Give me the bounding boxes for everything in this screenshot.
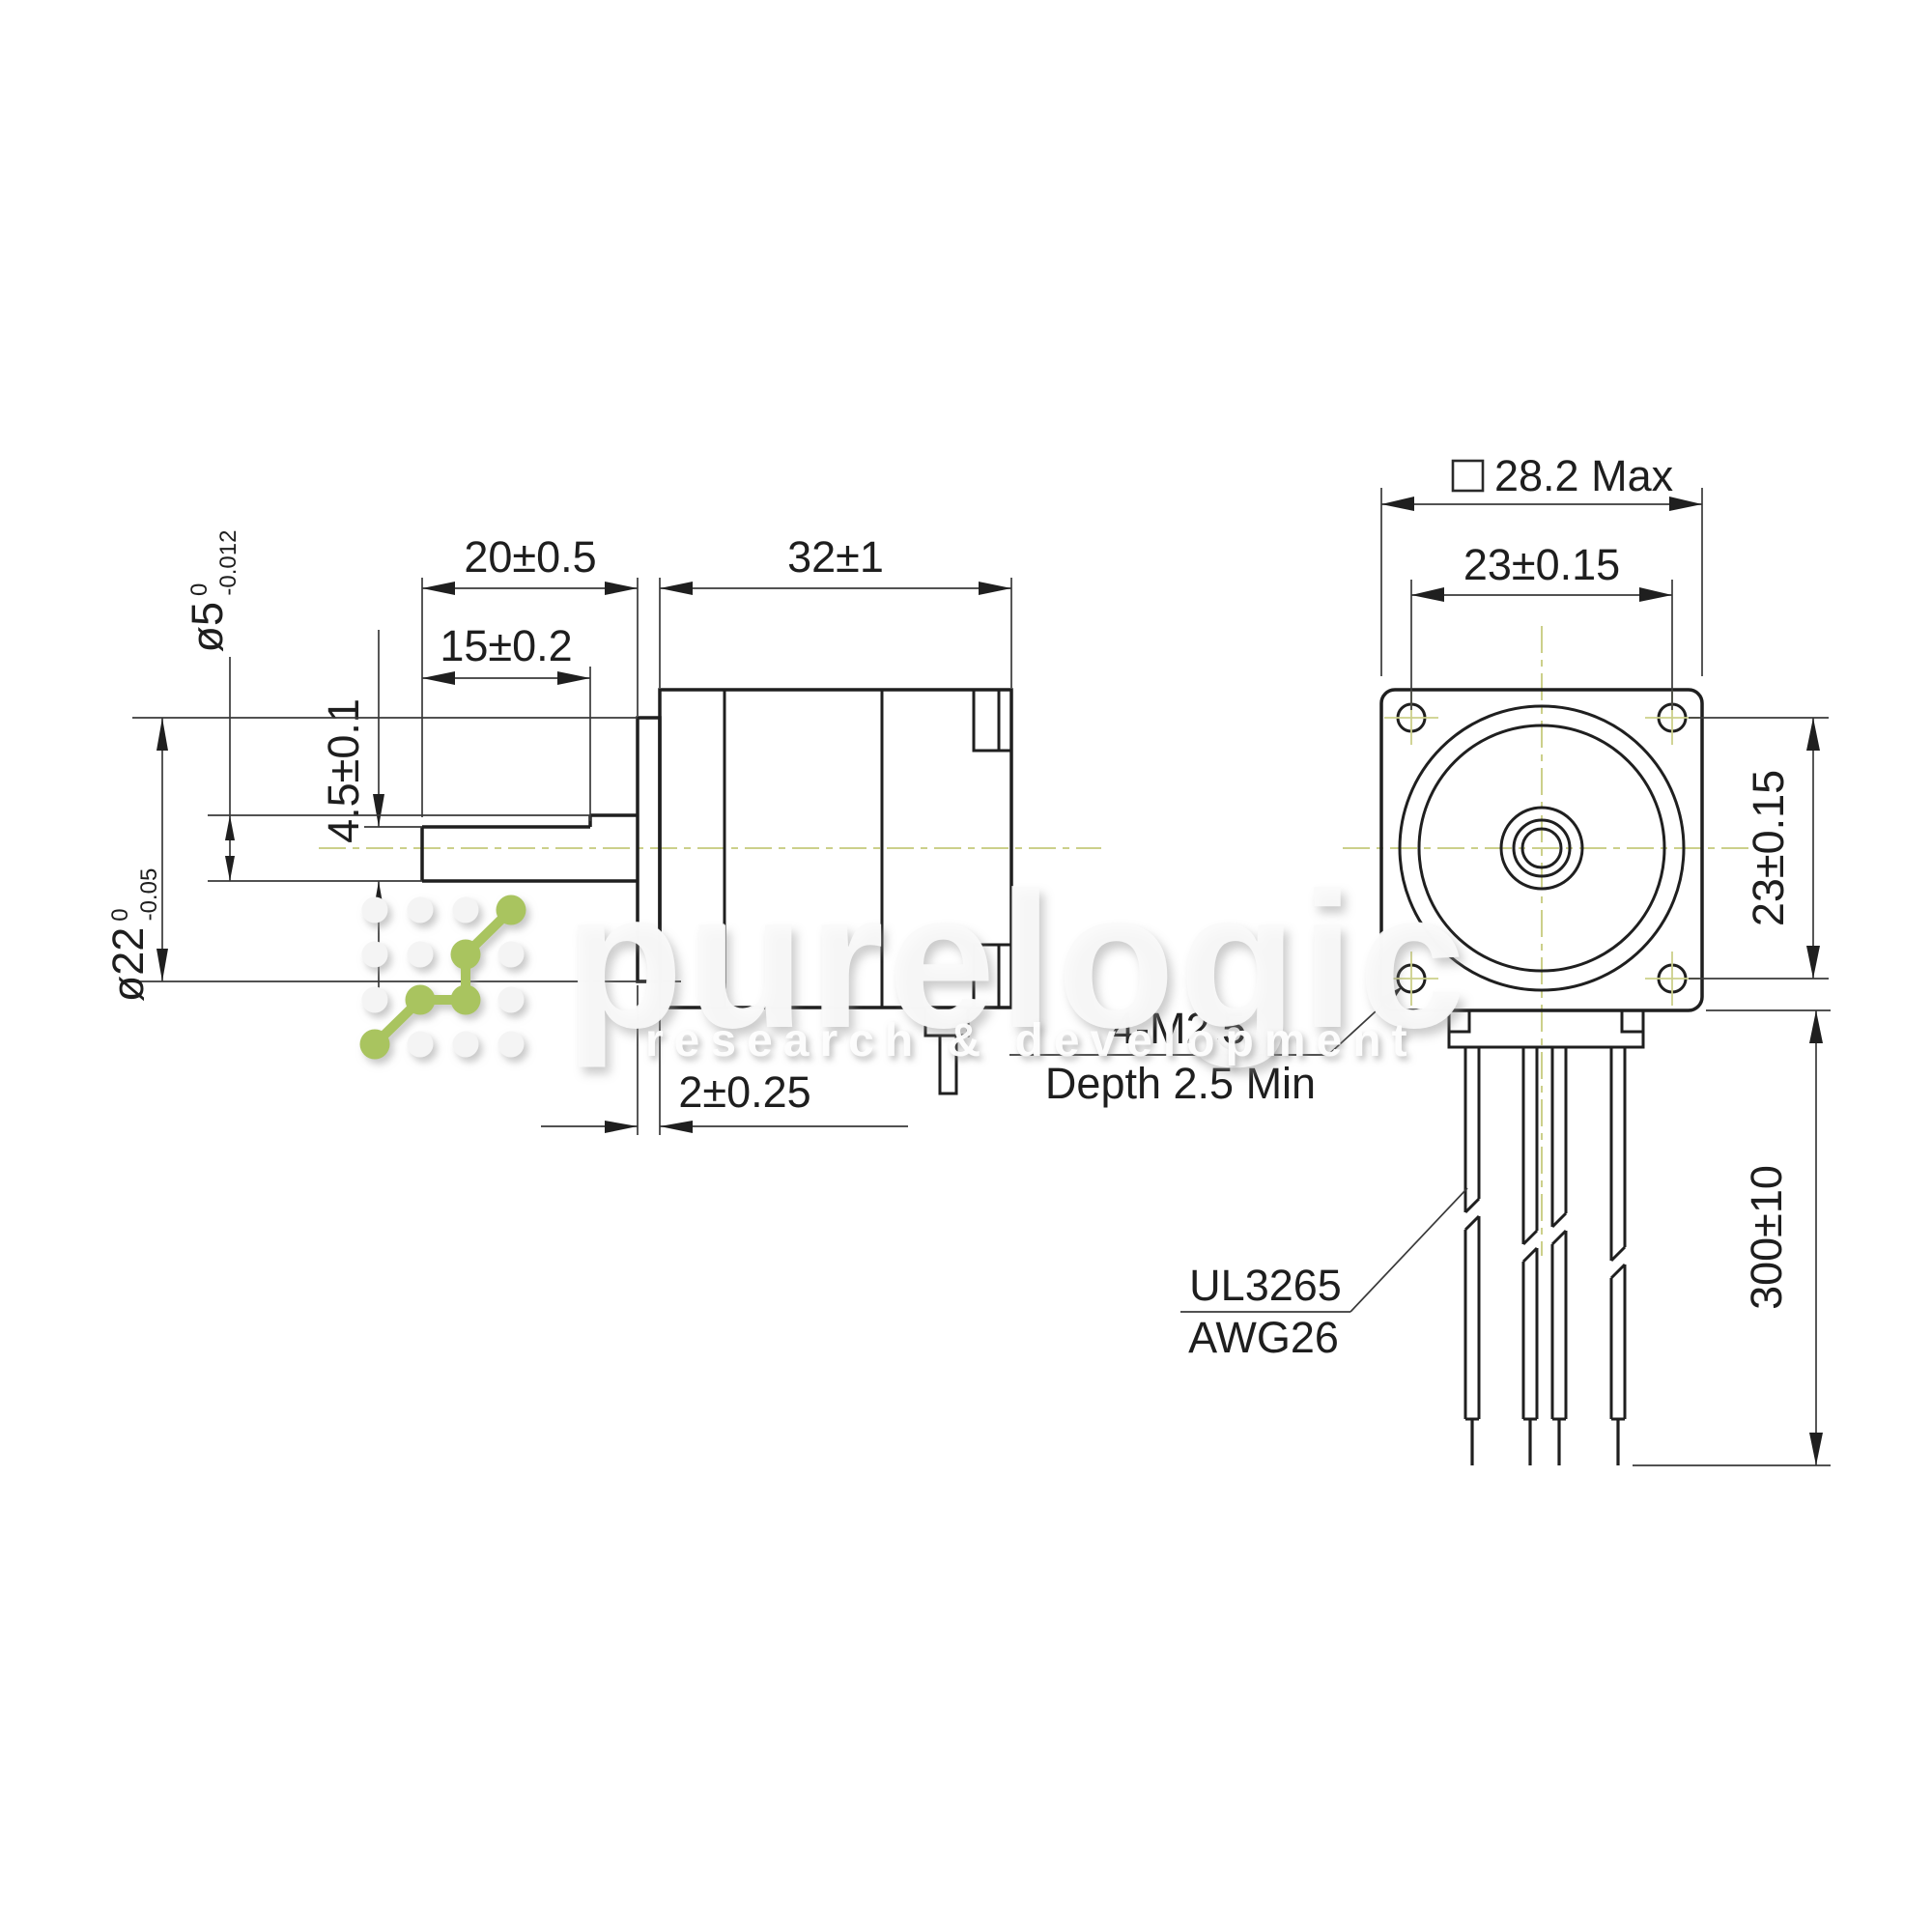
dim-flat-length-label: 15±0.2: [440, 621, 572, 670]
bare-wire-ends: [1472, 1419, 1618, 1465]
dim-shaft-length-label: 20±0.5: [464, 532, 596, 582]
front-connector-housing: [1449, 1010, 1643, 1047]
dim-boss-diameter: ø220-0.05: [103, 718, 681, 1002]
note-mounting-line1: 4-M2.5: [1111, 1004, 1246, 1053]
dim-flat-depth-label: 4.5±0.1: [319, 698, 368, 843]
note-wire-line1: UL3265: [1189, 1261, 1342, 1310]
side-view: 20±0.5 32±1 15±0.2 4.5±0.1: [103, 530, 1101, 1135]
dim-hole-spacing-vertical-label: 23±0.15: [1744, 770, 1793, 926]
dim-wire-length: 300±10: [1633, 1010, 1831, 1465]
dim-wire-length-label: 300±10: [1742, 1165, 1791, 1310]
dim-flat-depth: 4.5±0.1: [319, 630, 422, 1005]
note-wire-spec: UL3265 AWG26: [1180, 1188, 1467, 1362]
note-mounting-line2: Depth 2.5 Min: [1045, 1059, 1316, 1108]
dim-body-length: 32±1: [660, 532, 1011, 688]
rear-insert-bottom: [974, 945, 1011, 1008]
technical-drawing-page: 20±0.5 32±1 15±0.2 4.5±0.1: [0, 0, 1932, 1932]
dim-body-length-label: 32±1: [787, 532, 884, 582]
dim-boss-width-label: 2±0.25: [678, 1067, 810, 1117]
square-symbol: [1453, 461, 1483, 491]
note-wire-line2: AWG26: [1188, 1313, 1339, 1362]
rear-insert-top: [974, 690, 1011, 751]
dimension-drawing: 20±0.5 32±1 15±0.2 4.5±0.1: [0, 0, 1932, 1932]
side-connector: [925, 1008, 968, 1094]
dim-shaft-diameter-label: ø50-0.012: [183, 530, 241, 653]
front-view: 28.2 Max 23±0.15 23±0.15 300±: [1009, 451, 1831, 1465]
dim-flat-length: 15±0.2: [422, 621, 590, 821]
lead-wires: [1465, 1047, 1625, 1465]
dim-body-width-label: 28.2 Max: [1494, 451, 1674, 500]
note-mounting-thread: 4-M2.5 Depth 2.5 Min: [1009, 986, 1403, 1108]
dim-hole-spacing-horizontal-label: 23±0.15: [1463, 540, 1620, 589]
pilot-boss: [638, 718, 660, 981]
